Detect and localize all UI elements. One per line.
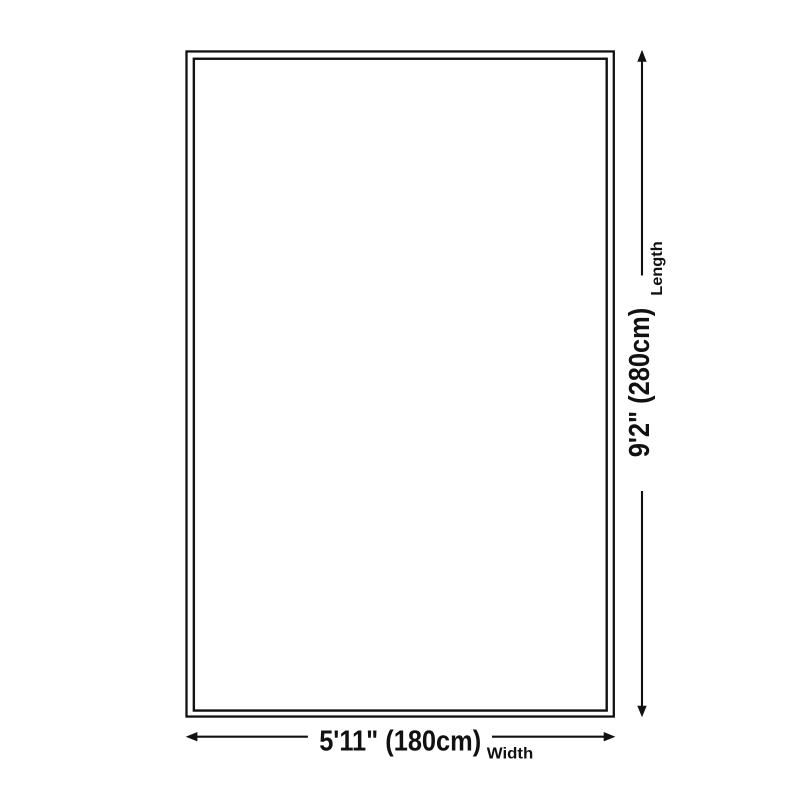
- svg-text:Width: Width: [487, 745, 534, 762]
- svg-text:Length: Length: [649, 241, 666, 296]
- svg-text:5'11" (180cm): 5'11" (180cm): [319, 725, 481, 757]
- svg-text:9'2" (280cm): 9'2" (280cm): [623, 308, 655, 458]
